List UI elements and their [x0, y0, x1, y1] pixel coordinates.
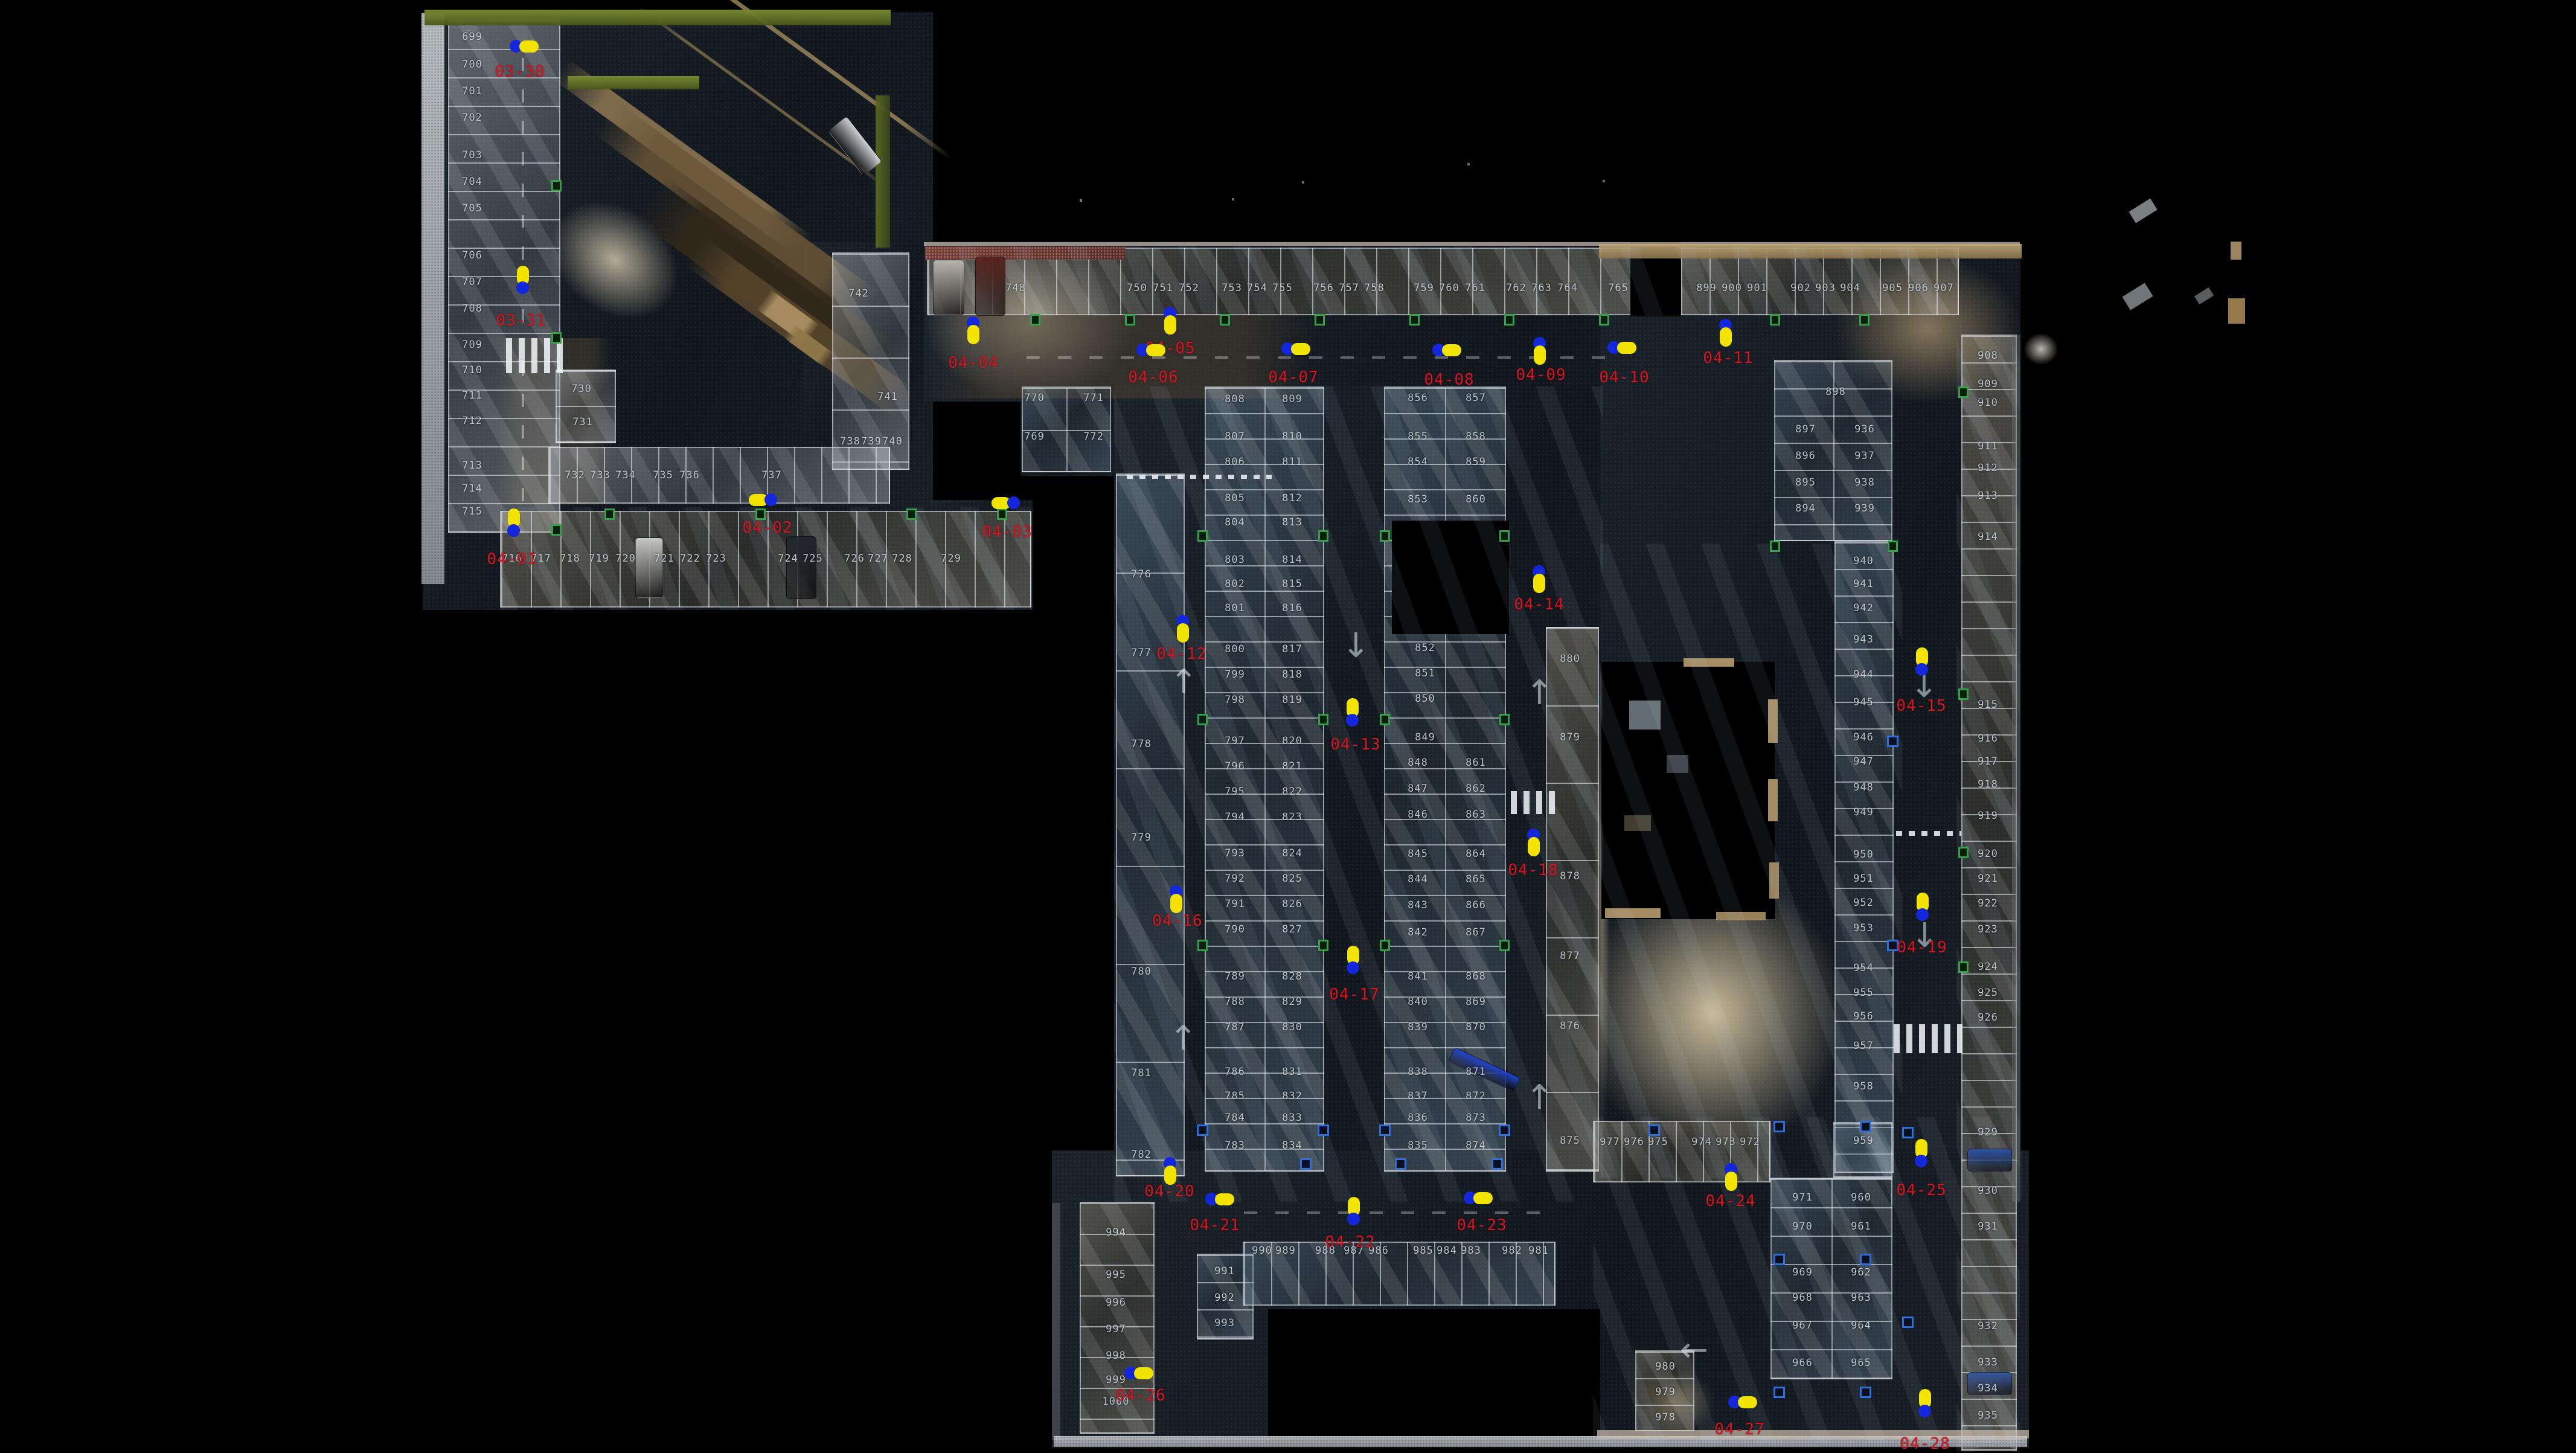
stall-number-707: 707 — [455, 276, 489, 288]
stall-number-994: 994 — [1099, 1227, 1133, 1239]
stall-number-851: 851 — [1408, 667, 1442, 679]
door-fixture-green — [1380, 940, 1390, 951]
door-fixture-green — [1125, 314, 1135, 326]
wall-edge — [568, 76, 699, 89]
scan-station-marker-04-09[interactable] — [1524, 336, 1556, 367]
marker-yellow-pill — [1291, 343, 1310, 355]
stall-number-794: 794 — [1218, 811, 1252, 823]
door-fixture-green — [1499, 714, 1510, 725]
stall-number-736: 736 — [673, 469, 706, 481]
stall-number-812: 812 — [1275, 492, 1309, 504]
door-fixture-green — [1958, 387, 1969, 398]
scan-station-label-03-30[interactable]: 03-30 — [475, 63, 565, 81]
stall-number-737: 737 — [755, 469, 789, 481]
marker-yellow-pill — [1146, 344, 1165, 356]
stall-number-847: 847 — [1401, 783, 1435, 795]
fixture-blue — [1773, 1121, 1785, 1132]
stall-number-846: 846 — [1401, 809, 1435, 821]
scan-station-label-04-18[interactable]: 04-18 — [1488, 861, 1578, 879]
stall-number-779: 779 — [1124, 832, 1158, 844]
scan-station-marker-04-01[interactable] — [498, 508, 530, 540]
door-fixture-green — [1958, 961, 1969, 973]
stall-number-860: 860 — [1459, 493, 1493, 505]
scan-station-marker-04-26[interactable] — [1123, 1358, 1155, 1389]
stall-band-divider — [1264, 388, 1266, 1170]
scan-station-marker-04-18[interactable] — [1518, 827, 1549, 859]
stall-number-807: 807 — [1218, 431, 1252, 443]
marker-yellow-pill — [1473, 1192, 1493, 1204]
ceiling-void — [1392, 521, 1509, 634]
stall-number-875: 875 — [1553, 1135, 1587, 1147]
lane-marking — [522, 362, 524, 501]
stall-number-871: 871 — [1459, 1066, 1493, 1078]
scan-station-marker-04-25[interactable] — [1906, 1139, 1937, 1170]
marker-yellow-pill — [1534, 345, 1546, 365]
stall-number-811: 811 — [1275, 456, 1309, 468]
scan-station-marker-04-10[interactable] — [1606, 332, 1638, 364]
stall-number-955: 955 — [1847, 987, 1880, 999]
stall-number-848: 848 — [1401, 757, 1435, 769]
scan-station-label-04-02[interactable]: 04-02 — [722, 519, 813, 537]
marker-yellow-pill — [1215, 1193, 1234, 1205]
stall-number-935: 935 — [1971, 1410, 2005, 1422]
scan-station-label-04-14[interactable]: 04-14 — [1494, 595, 1584, 614]
direction-arrow: ↑ — [1525, 1081, 1554, 1115]
door-fixture-green — [1197, 714, 1208, 725]
pointcloud-speck — [1302, 181, 1304, 184]
stall-number-971: 971 — [1786, 1192, 1819, 1204]
scan-station-marker-03-30[interactable] — [508, 31, 540, 62]
scan-station-marker-04-15[interactable] — [1906, 647, 1938, 679]
stall-number-909: 909 — [1971, 378, 2005, 390]
ceiling-void — [1601, 662, 1775, 919]
scan-station-marker-04-27[interactable] — [1727, 1387, 1758, 1418]
stall-number-997: 997 — [1099, 1323, 1133, 1335]
stall-number-933: 933 — [1971, 1356, 2005, 1368]
stall-number-897: 897 — [1789, 423, 1822, 435]
door-fixture-green — [1770, 540, 1780, 552]
stall-number-786: 786 — [1218, 1066, 1252, 1078]
stall-number-830: 830 — [1275, 1021, 1309, 1033]
crosswalk-markings — [1896, 831, 1961, 836]
marker-blue-dot — [516, 281, 529, 294]
scan-station-label-04-06[interactable]: 04-06 — [1108, 368, 1199, 387]
stall-number-852: 852 — [1408, 642, 1442, 654]
stall-number-701: 701 — [455, 85, 489, 97]
stall-number-837: 837 — [1401, 1090, 1435, 1102]
fixture-blue — [1773, 1254, 1785, 1265]
stall-number-910: 910 — [1971, 397, 2005, 409]
direction-arrow: ↑ — [1525, 676, 1554, 710]
stall-number-826: 826 — [1275, 898, 1309, 910]
scan-station-label-04-25[interactable]: 04-25 — [1876, 1181, 1967, 1199]
door-fixture-green — [1888, 540, 1898, 552]
direction-arrow: ↑ — [1169, 1022, 1197, 1056]
stall-number-923: 923 — [1971, 923, 2005, 935]
stall-number-854: 854 — [1401, 456, 1435, 468]
scan-station-marker-04-16[interactable] — [1161, 884, 1192, 916]
stall-number-809: 809 — [1275, 393, 1309, 405]
fixture-blue — [1499, 1124, 1510, 1136]
scan-station-label-04-03[interactable]: 04-03 — [962, 523, 1053, 541]
stall-number-904: 904 — [1833, 282, 1867, 294]
stall-number-972: 972 — [1733, 1136, 1767, 1148]
stall-number-825: 825 — [1275, 873, 1309, 885]
door-fixture-green — [604, 508, 615, 520]
stall-number-772: 772 — [1077, 431, 1110, 443]
door-fixture-green — [1499, 940, 1510, 951]
scan-station-marker-03-31[interactable] — [507, 266, 539, 297]
stall-number-731: 731 — [566, 416, 600, 428]
stall-number-796: 796 — [1218, 760, 1252, 772]
fixture-blue — [1300, 1158, 1312, 1170]
core-structure-fragment — [1768, 779, 1778, 821]
stall-number-918: 918 — [1971, 778, 2005, 791]
stall-number-729: 729 — [934, 553, 968, 565]
core-structure-fragment — [1605, 908, 1661, 918]
scan-station-label-04-11[interactable]: 04-11 — [1683, 349, 1773, 367]
stall-number-989: 989 — [1269, 1245, 1302, 1257]
marker-blue-dot — [1347, 1213, 1360, 1225]
lane-marking — [1244, 1211, 1558, 1214]
wall-edge — [421, 13, 444, 584]
pointcloud-speck — [2231, 242, 2241, 260]
scan-station-label-04-04[interactable]: 04-04 — [928, 354, 1019, 372]
scan-station-label-04-22[interactable]: 04-22 — [1305, 1233, 1395, 1251]
stall-number-867: 867 — [1459, 926, 1493, 938]
stall-number-831: 831 — [1275, 1066, 1309, 1078]
stall-number-864: 864 — [1459, 848, 1493, 860]
stall-number-967: 967 — [1786, 1320, 1819, 1332]
stall-number-778: 778 — [1124, 738, 1158, 750]
stall-number-957: 957 — [1847, 1040, 1880, 1052]
stall-number-962: 962 — [1844, 1266, 1878, 1278]
core-structure-fragment — [1667, 755, 1688, 773]
fixture-blue — [1860, 1387, 1871, 1398]
stall-number-799: 799 — [1218, 669, 1252, 681]
stall-number-797: 797 — [1218, 735, 1252, 747]
core-structure-fragment — [1769, 862, 1779, 899]
door-fixture-green — [1318, 940, 1328, 951]
stall-number-965: 965 — [1844, 1357, 1878, 1369]
stall-number-856: 856 — [1401, 392, 1435, 404]
scan-station-label-04-26[interactable]: 04-26 — [1095, 1387, 1186, 1405]
direction-arrow: ← — [1680, 1333, 1708, 1367]
stall-number-908: 908 — [1971, 350, 2005, 362]
stall-number-943: 943 — [1847, 633, 1880, 646]
stall-number-938: 938 — [1848, 476, 1882, 489]
scan-station-label-04-28[interactable]: 04-28 — [1880, 1435, 1970, 1453]
stall-number-961: 961 — [1844, 1220, 1878, 1233]
door-fixture-green — [551, 180, 562, 191]
stall-number-939: 939 — [1848, 502, 1882, 515]
stall-number-951: 951 — [1847, 873, 1880, 885]
stall-number-993: 993 — [1208, 1317, 1242, 1329]
marker-yellow-pill — [1170, 894, 1182, 913]
stall-number-798: 798 — [1218, 694, 1252, 706]
stall-band-divider — [1831, 1179, 1833, 1378]
stall-number-702: 702 — [455, 112, 489, 124]
scan-station-label-04-08[interactable]: 04-08 — [1404, 371, 1495, 389]
scan-station-marker-04-07[interactable] — [1280, 333, 1312, 365]
stall-number-916: 916 — [1971, 733, 2005, 745]
stall-number-919: 919 — [1971, 810, 2005, 822]
crosswalk-markings — [1127, 475, 1272, 479]
stall-number-790: 790 — [1218, 923, 1252, 935]
stall-number-960: 960 — [1844, 1192, 1878, 1204]
wall-edge — [2012, 335, 2020, 1202]
scan-station-marker-04-20[interactable] — [1155, 1156, 1186, 1187]
stall-number-991: 991 — [1208, 1265, 1242, 1277]
scan-station-label-04-09[interactable]: 04-09 — [1496, 366, 1586, 384]
stall-number-968: 968 — [1786, 1292, 1819, 1304]
marker-yellow-pill — [519, 40, 539, 53]
stall-number-789: 789 — [1218, 970, 1252, 983]
stall-number-713: 713 — [455, 460, 489, 472]
stall-number-730: 730 — [565, 383, 598, 395]
core-structure-fragment — [1624, 815, 1651, 831]
scan-station-label-04-27[interactable]: 04-27 — [1694, 1420, 1785, 1439]
stall-number-940: 940 — [1847, 555, 1880, 567]
ceiling-void — [1268, 1309, 1600, 1445]
scan-station-label-04-10[interactable]: 04-10 — [1579, 368, 1670, 387]
stall-number-715: 715 — [455, 505, 489, 518]
stall-number-765: 765 — [1601, 282, 1635, 294]
stall-number-959: 959 — [1847, 1135, 1880, 1147]
stall-number-901: 901 — [1740, 282, 1774, 294]
stall-number-827: 827 — [1275, 923, 1309, 935]
scan-station-label-04-07[interactable]: 04-07 — [1248, 368, 1339, 387]
stall-number-720: 720 — [609, 553, 642, 565]
pointcloud-speck — [2129, 199, 2157, 223]
stall-number-808: 808 — [1218, 393, 1252, 405]
scan-station-marker-04-23[interactable] — [1463, 1182, 1494, 1214]
scan-station-marker-04-24[interactable] — [1716, 1162, 1747, 1193]
stall-number-896: 896 — [1789, 450, 1822, 462]
stall-number-835: 835 — [1401, 1140, 1435, 1152]
stall-number-803: 803 — [1218, 554, 1252, 566]
stall-number-858: 858 — [1459, 431, 1493, 443]
fixture-blue — [1197, 1124, 1208, 1136]
stall-number-870: 870 — [1459, 1021, 1493, 1033]
stall-number-829: 829 — [1275, 996, 1309, 1008]
door-fixture-green — [551, 332, 562, 344]
marker-blue-dot — [1918, 1405, 1931, 1417]
door-fixture-green — [1315, 314, 1325, 326]
scan-station-marker-04-14[interactable] — [1523, 564, 1555, 595]
stall-number-915: 915 — [1971, 699, 2005, 711]
stall-number-816: 816 — [1275, 602, 1309, 614]
stall-number-818: 818 — [1275, 669, 1309, 681]
stall-number-782: 782 — [1124, 1149, 1158, 1161]
stall-number-932: 932 — [1971, 1320, 2005, 1332]
pointcloud-speck — [1467, 163, 1470, 165]
stall-number-911: 911 — [1971, 440, 2005, 452]
stall-number-874: 874 — [1459, 1140, 1493, 1152]
stall-number-728: 728 — [885, 553, 919, 565]
stall-number-783: 783 — [1218, 1140, 1252, 1152]
scan-station-marker-04-04[interactable] — [958, 315, 989, 347]
pointcloud-speck — [2228, 298, 2245, 324]
stall-number-806: 806 — [1218, 456, 1252, 468]
crosswalk-markings — [1894, 1024, 1962, 1053]
stall-number-819: 819 — [1275, 694, 1309, 706]
crosswalk-markings — [1511, 791, 1559, 814]
door-fixture-green — [1380, 714, 1390, 725]
door-fixture-green — [1409, 314, 1420, 326]
wall-edge — [876, 95, 890, 248]
stall-number-741: 741 — [871, 391, 905, 403]
stall-number-709: 709 — [455, 339, 489, 351]
scan-station-marker-04-21[interactable] — [1204, 1184, 1235, 1215]
stall-number-869: 869 — [1459, 996, 1493, 1008]
stall-number-785: 785 — [1218, 1090, 1252, 1102]
stall-number-801: 801 — [1218, 602, 1252, 614]
fixture-blue — [1860, 1254, 1871, 1265]
stall-number-755: 755 — [1266, 282, 1299, 294]
stall-number-742: 742 — [842, 287, 876, 300]
marker-blue-dot — [1916, 908, 1929, 921]
parking-stall-band — [1546, 627, 1599, 1172]
scan-station-marker-04-12[interactable] — [1167, 614, 1199, 645]
stall-number-841: 841 — [1401, 970, 1435, 983]
stall-number-925: 925 — [1971, 987, 2005, 999]
stall-number-787: 787 — [1218, 1021, 1252, 1033]
stall-number-873: 873 — [1459, 1112, 1493, 1124]
stall-number-866: 866 — [1459, 899, 1493, 911]
stall-number-704: 704 — [455, 176, 489, 188]
stall-number-944: 944 — [1847, 669, 1880, 681]
stall-number-810: 810 — [1275, 431, 1309, 443]
stall-number-978: 978 — [1648, 1411, 1682, 1423]
stall-number-855: 855 — [1401, 431, 1435, 443]
stall-number-863: 863 — [1459, 809, 1493, 821]
stall-number-952: 952 — [1847, 897, 1880, 909]
core-structure-fragment — [1684, 658, 1734, 667]
marker-blue-dot — [1915, 663, 1928, 676]
stall-number-950: 950 — [1847, 848, 1880, 861]
scan-station-marker-04-02[interactable] — [748, 484, 779, 516]
stall-number-969: 969 — [1786, 1266, 1819, 1278]
scan-station-marker-04-05[interactable] — [1155, 306, 1186, 337]
stall-number-832: 832 — [1275, 1090, 1309, 1102]
door-fixture-green — [1197, 530, 1208, 542]
stall-number-824: 824 — [1275, 847, 1309, 859]
fixture-blue — [1902, 1127, 1914, 1138]
stall-number-802: 802 — [1218, 578, 1252, 590]
stall-number-937: 937 — [1848, 450, 1882, 462]
stall-band-divider — [1445, 388, 1446, 1170]
marker-yellow-pill — [1738, 1396, 1757, 1408]
stall-number-996: 996 — [1099, 1297, 1133, 1309]
fixture-blue — [1773, 1387, 1785, 1398]
scan-station-label-04-24[interactable]: 04-24 — [1685, 1192, 1776, 1210]
stall-number-834: 834 — [1275, 1140, 1309, 1152]
scan-station-marker-04-17[interactable] — [1338, 946, 1369, 977]
stall-number-872: 872 — [1459, 1090, 1493, 1102]
stall-number-953: 953 — [1847, 922, 1880, 934]
door-fixture-green — [1770, 314, 1780, 326]
scan-station-marker-04-28[interactable] — [1909, 1389, 1941, 1420]
pointcloud-speck — [2122, 283, 2153, 310]
parking-stall-band — [1205, 387, 1324, 1172]
stall-number-992: 992 — [1208, 1292, 1242, 1304]
marker-yellow-pill — [1617, 342, 1636, 354]
wall-edge — [1052, 1203, 1060, 1440]
door-fixture-green — [1859, 314, 1870, 326]
pointcloud-speck — [2194, 287, 2214, 304]
stall-number-947: 947 — [1847, 755, 1880, 768]
direction-arrow: ↓ — [1342, 629, 1370, 663]
floorplan-canvas[interactable]: ↑↓↑↓↓←↑↑69970070170270370470570670770870… — [0, 0, 2576, 1449]
scan-station-label-04-01[interactable]: 04-01 — [467, 550, 557, 568]
scan-station-label-04-15[interactable]: 04-15 — [1876, 697, 1967, 715]
stall-number-920: 920 — [1971, 848, 2005, 860]
marker-blue-dot — [1007, 496, 1020, 509]
stall-number-740: 740 — [876, 435, 909, 447]
door-fixture-green — [1030, 314, 1040, 326]
marker-blue-dot — [764, 493, 777, 506]
scan-station-label-04-21[interactable]: 04-21 — [1170, 1216, 1260, 1234]
stall-number-956: 956 — [1847, 1010, 1880, 1022]
scan-station-marker-04-13[interactable] — [1337, 698, 1368, 730]
scan-station-label-04-13[interactable]: 04-13 — [1310, 736, 1401, 754]
scan-station-label-04-12[interactable]: 04-12 — [1136, 645, 1227, 663]
scan-station-marker-04-08[interactable] — [1431, 335, 1463, 366]
parked-car — [635, 537, 663, 598]
stall-number-838: 838 — [1401, 1066, 1435, 1078]
stall-number-822: 822 — [1275, 786, 1309, 798]
core-structure-fragment — [1768, 699, 1778, 743]
marker-yellow-pill — [1725, 1172, 1737, 1191]
stall-number-771: 771 — [1077, 392, 1110, 404]
door-fixture-green — [1197, 940, 1208, 951]
scan-station-label-04-23[interactable]: 04-23 — [1437, 1216, 1527, 1234]
scan-station-label-03-31[interactable]: 03-31 — [476, 312, 566, 330]
scan-station-label-04-19[interactable]: 04-19 — [1877, 938, 1967, 957]
stall-number-761: 761 — [1458, 282, 1492, 294]
scan-station-marker-04-06[interactable] — [1135, 335, 1167, 366]
stall-number-879: 879 — [1553, 731, 1587, 743]
stall-number-705: 705 — [455, 202, 489, 214]
light-patch — [2024, 333, 2058, 365]
stall-number-781: 781 — [1124, 1067, 1158, 1079]
stall-number-711: 711 — [455, 390, 489, 402]
marker-blue-dot — [1347, 961, 1359, 974]
door-fixture-green — [1958, 847, 1969, 858]
scan-station-marker-04-11[interactable] — [1710, 318, 1741, 349]
stall-number-868: 868 — [1459, 970, 1493, 983]
wall-edge — [925, 246, 1126, 260]
stall-number-850: 850 — [1408, 693, 1442, 705]
door-fixture-green — [906, 508, 917, 520]
scan-station-marker-04-03[interactable] — [990, 487, 1022, 519]
scan-station-label-04-17[interactable]: 04-17 — [1309, 986, 1400, 1004]
door-fixture-green — [1504, 314, 1514, 326]
stall-number-840: 840 — [1401, 996, 1435, 1008]
scan-station-marker-04-19[interactable] — [1907, 893, 1938, 924]
stall-number-966: 966 — [1786, 1357, 1819, 1369]
scan-station-marker-04-22[interactable] — [1338, 1197, 1370, 1228]
door-fixture-green — [1220, 314, 1230, 326]
stall-number-821: 821 — [1275, 760, 1309, 772]
parked-car — [1967, 1149, 2012, 1172]
stall-number-922: 922 — [1971, 897, 2005, 909]
fixture-blue — [1902, 1317, 1914, 1328]
door-fixture-green — [1599, 314, 1609, 326]
stall-number-857: 857 — [1459, 392, 1493, 404]
fixture-blue — [1395, 1158, 1406, 1170]
